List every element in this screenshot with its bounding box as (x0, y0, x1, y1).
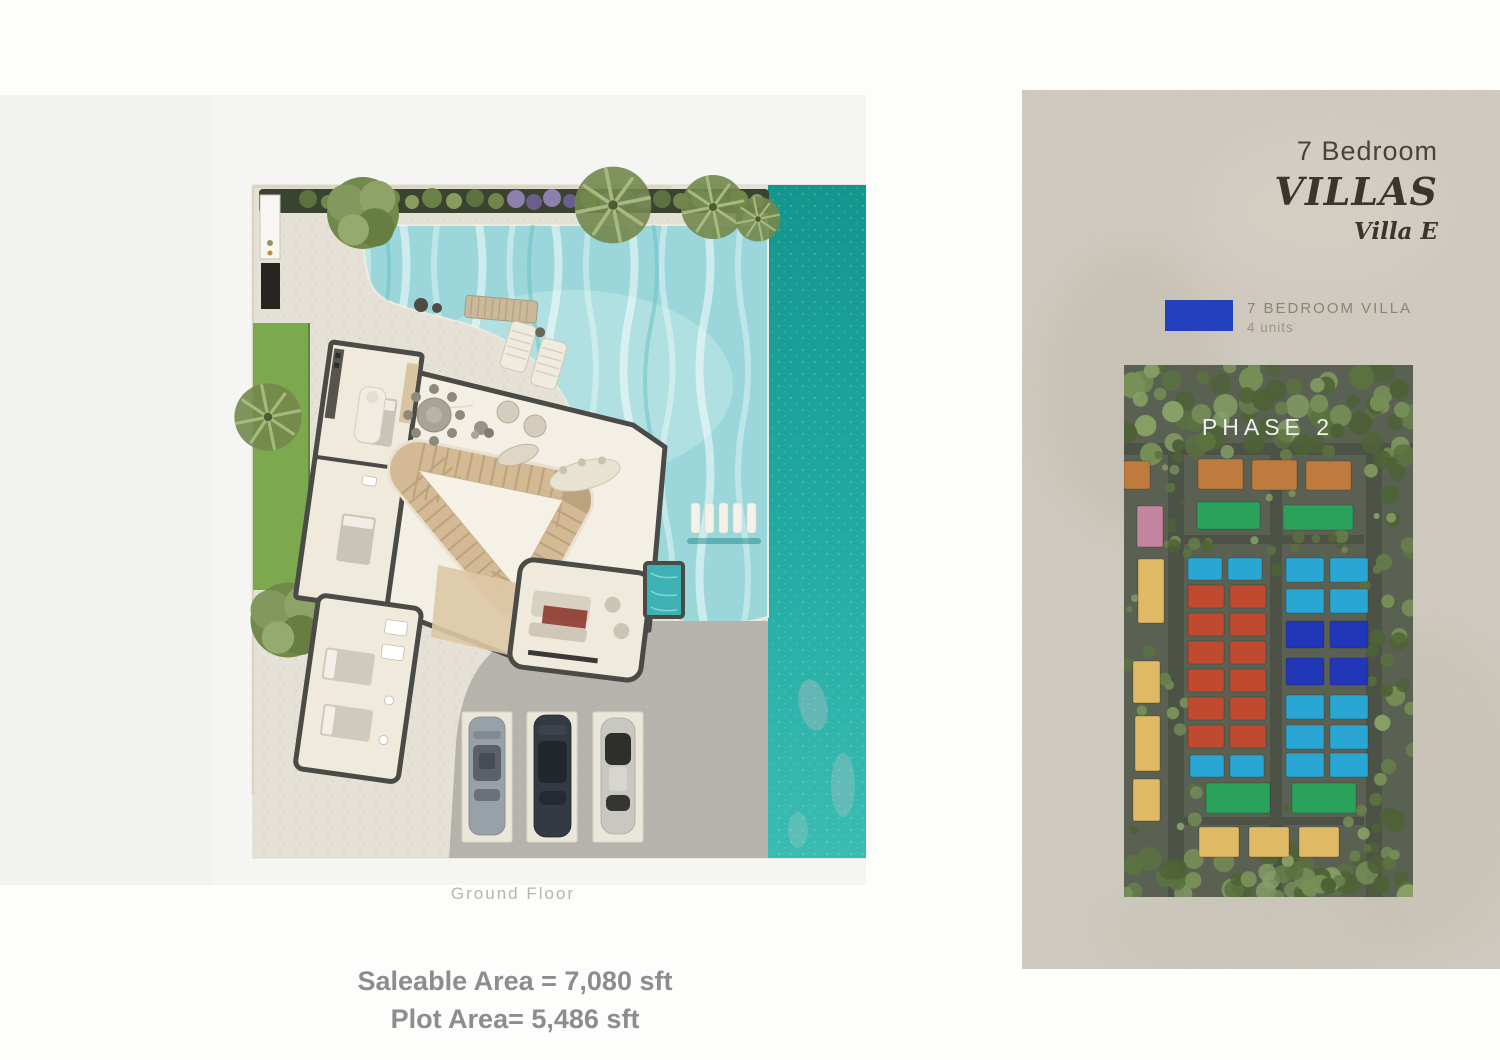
title-bedrooms: 7 Bedroom (1274, 136, 1438, 167)
side-panel: 7 Bedroom VILLAS Villa E 7 BEDROOM VILLA… (1022, 90, 1500, 969)
palm-icon (681, 175, 745, 239)
car-silver (601, 718, 635, 834)
legend-units: 4 units (1247, 320, 1412, 335)
site-map: PHASE 2 (1124, 365, 1413, 897)
living-wing (508, 558, 652, 681)
car-gray (469, 717, 505, 835)
brochure-page: { "title": { "line1": "7 Bedroom", "line… (0, 0, 1500, 1060)
legend-color-swatch (1165, 300, 1233, 331)
floor-caption: Ground Floor (213, 884, 813, 904)
car-dark (534, 715, 571, 837)
palm-icon (575, 167, 652, 244)
title-block: 7 Bedroom VILLAS Villa E (1274, 136, 1438, 245)
legend-label: 7 BEDROOM VILLA (1247, 300, 1412, 317)
site-map-rendering: PHASE 2 (1124, 365, 1413, 897)
floor-plan-rendering (213, 95, 866, 885)
plot-area-text: Plot Area= 5,486 sft (280, 1000, 750, 1038)
saleable-area-text: Saleable Area = 7,080 sft (280, 962, 750, 1000)
area-summary: Saleable Area = 7,080 sft Plot Area= 5,4… (280, 962, 750, 1038)
phase-label: PHASE 2 (1202, 414, 1334, 440)
tree-icon (327, 177, 399, 249)
title-villas: VILLAS (1274, 169, 1438, 214)
legend: 7 BEDROOM VILLA 4 units (1165, 300, 1412, 335)
floor-plan-panel (213, 95, 866, 885)
bedroom-wing-lower (295, 595, 422, 783)
palm-icon (234, 383, 301, 450)
page-left-margin (0, 95, 218, 885)
title-villa-type: Villa E (1274, 218, 1438, 245)
palm-icon (736, 197, 781, 242)
